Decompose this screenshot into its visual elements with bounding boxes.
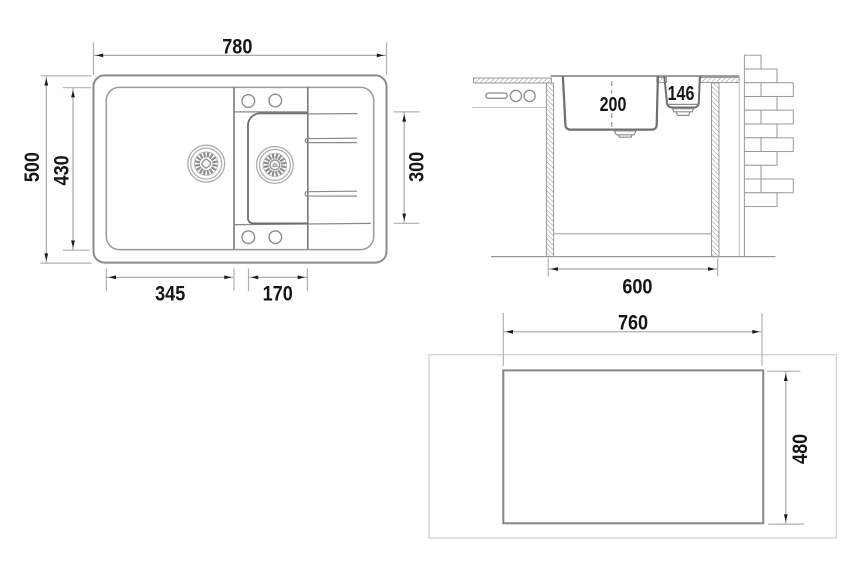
svg-text:480: 480 [789, 434, 813, 464]
svg-text:345: 345 [155, 282, 185, 306]
svg-text:200: 200 [600, 93, 627, 115]
svg-text:760: 760 [618, 311, 648, 335]
svg-text:430: 430 [50, 155, 74, 185]
svg-text:170: 170 [263, 282, 293, 306]
svg-text:146: 146 [668, 82, 695, 104]
svg-text:600: 600 [622, 275, 652, 299]
svg-text:500: 500 [21, 152, 45, 182]
svg-text:780: 780 [222, 35, 252, 59]
svg-text:300: 300 [405, 152, 429, 182]
